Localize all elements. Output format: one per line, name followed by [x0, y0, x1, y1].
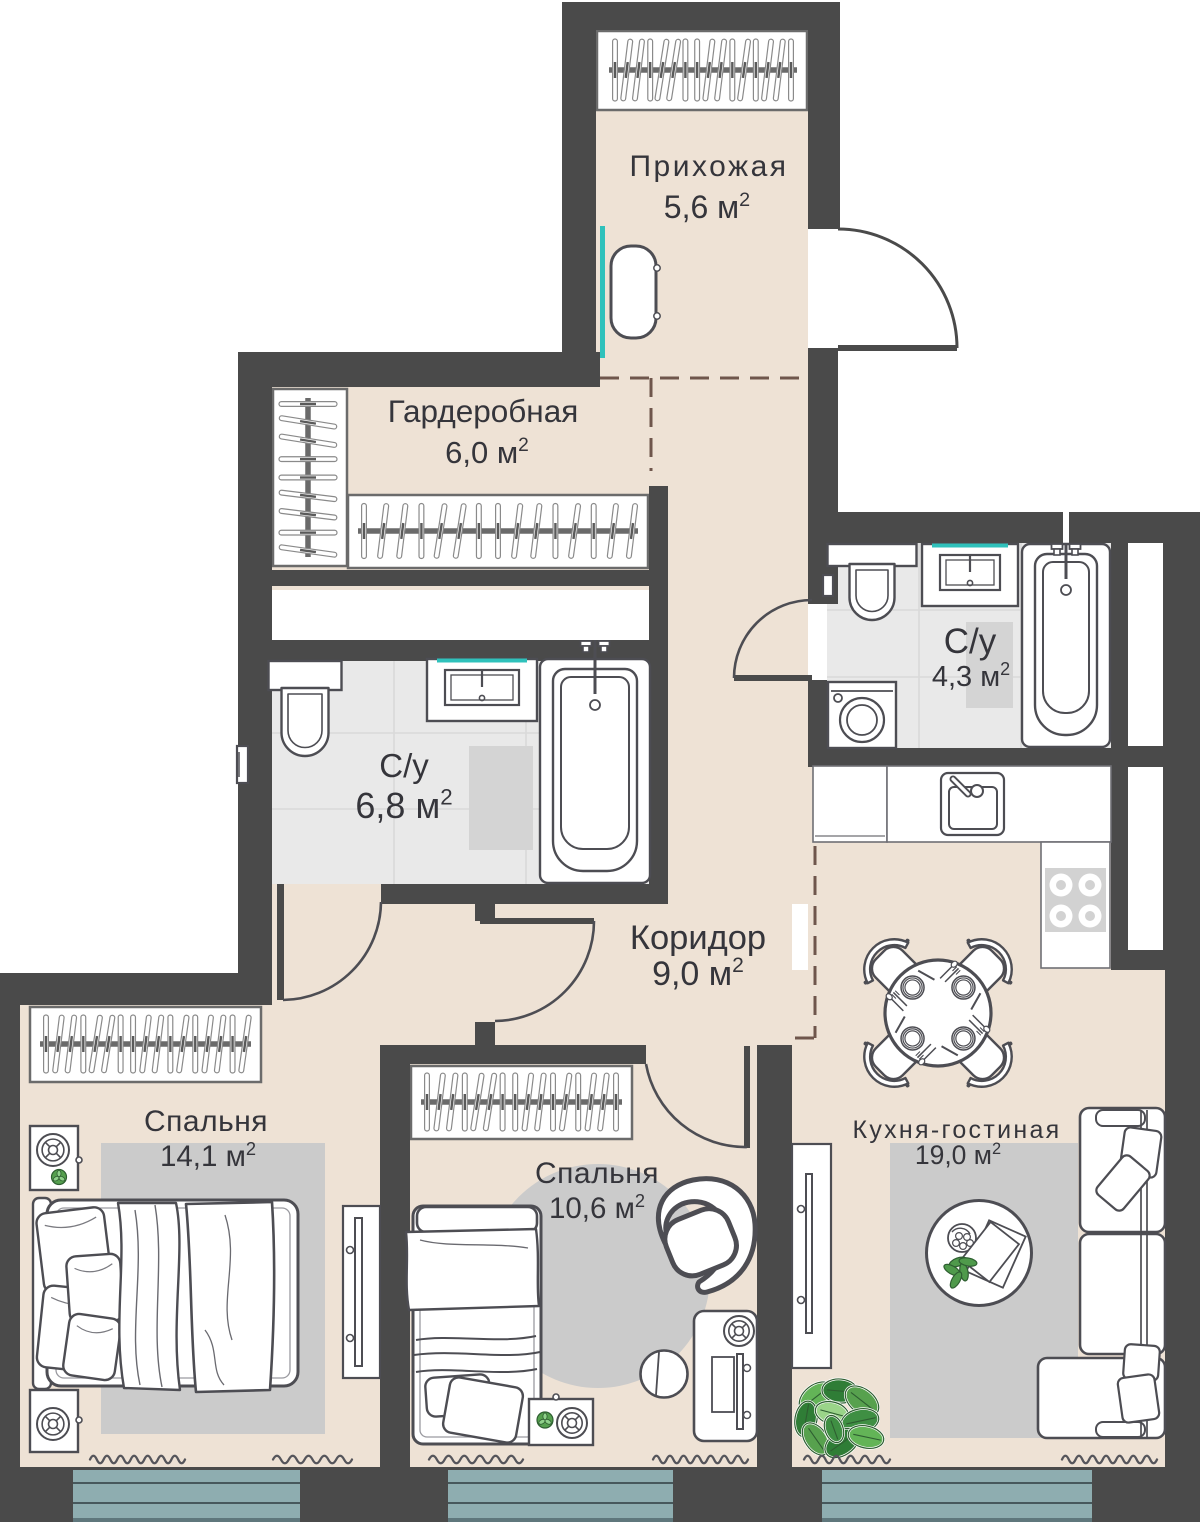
- svg-text:10,6 м2: 10,6 м2: [549, 1190, 645, 1225]
- svg-text:Спальня: Спальня: [144, 1105, 268, 1138]
- svg-text:Спальня: Спальня: [535, 1157, 659, 1190]
- svg-text:4,3 м2: 4,3 м2: [932, 659, 1010, 693]
- svg-text:С/у: С/у: [944, 622, 997, 661]
- svg-text:14,1 м2: 14,1 м2: [160, 1138, 256, 1173]
- svg-text:9,0 м2: 9,0 м2: [652, 954, 744, 993]
- svg-text:Коридор: Коридор: [630, 919, 766, 957]
- svg-text:6,8 м2: 6,8 м2: [355, 784, 452, 826]
- svg-text:С/у: С/у: [379, 747, 429, 784]
- svg-text:6,0 м2: 6,0 м2: [445, 435, 529, 470]
- svg-text:19,0 м2: 19,0 м2: [915, 1140, 1001, 1170]
- svg-text:5,6 м2: 5,6 м2: [664, 189, 750, 225]
- svg-text:Прихожая: Прихожая: [629, 150, 788, 183]
- svg-text:Гардеробная: Гардеробная: [388, 393, 579, 429]
